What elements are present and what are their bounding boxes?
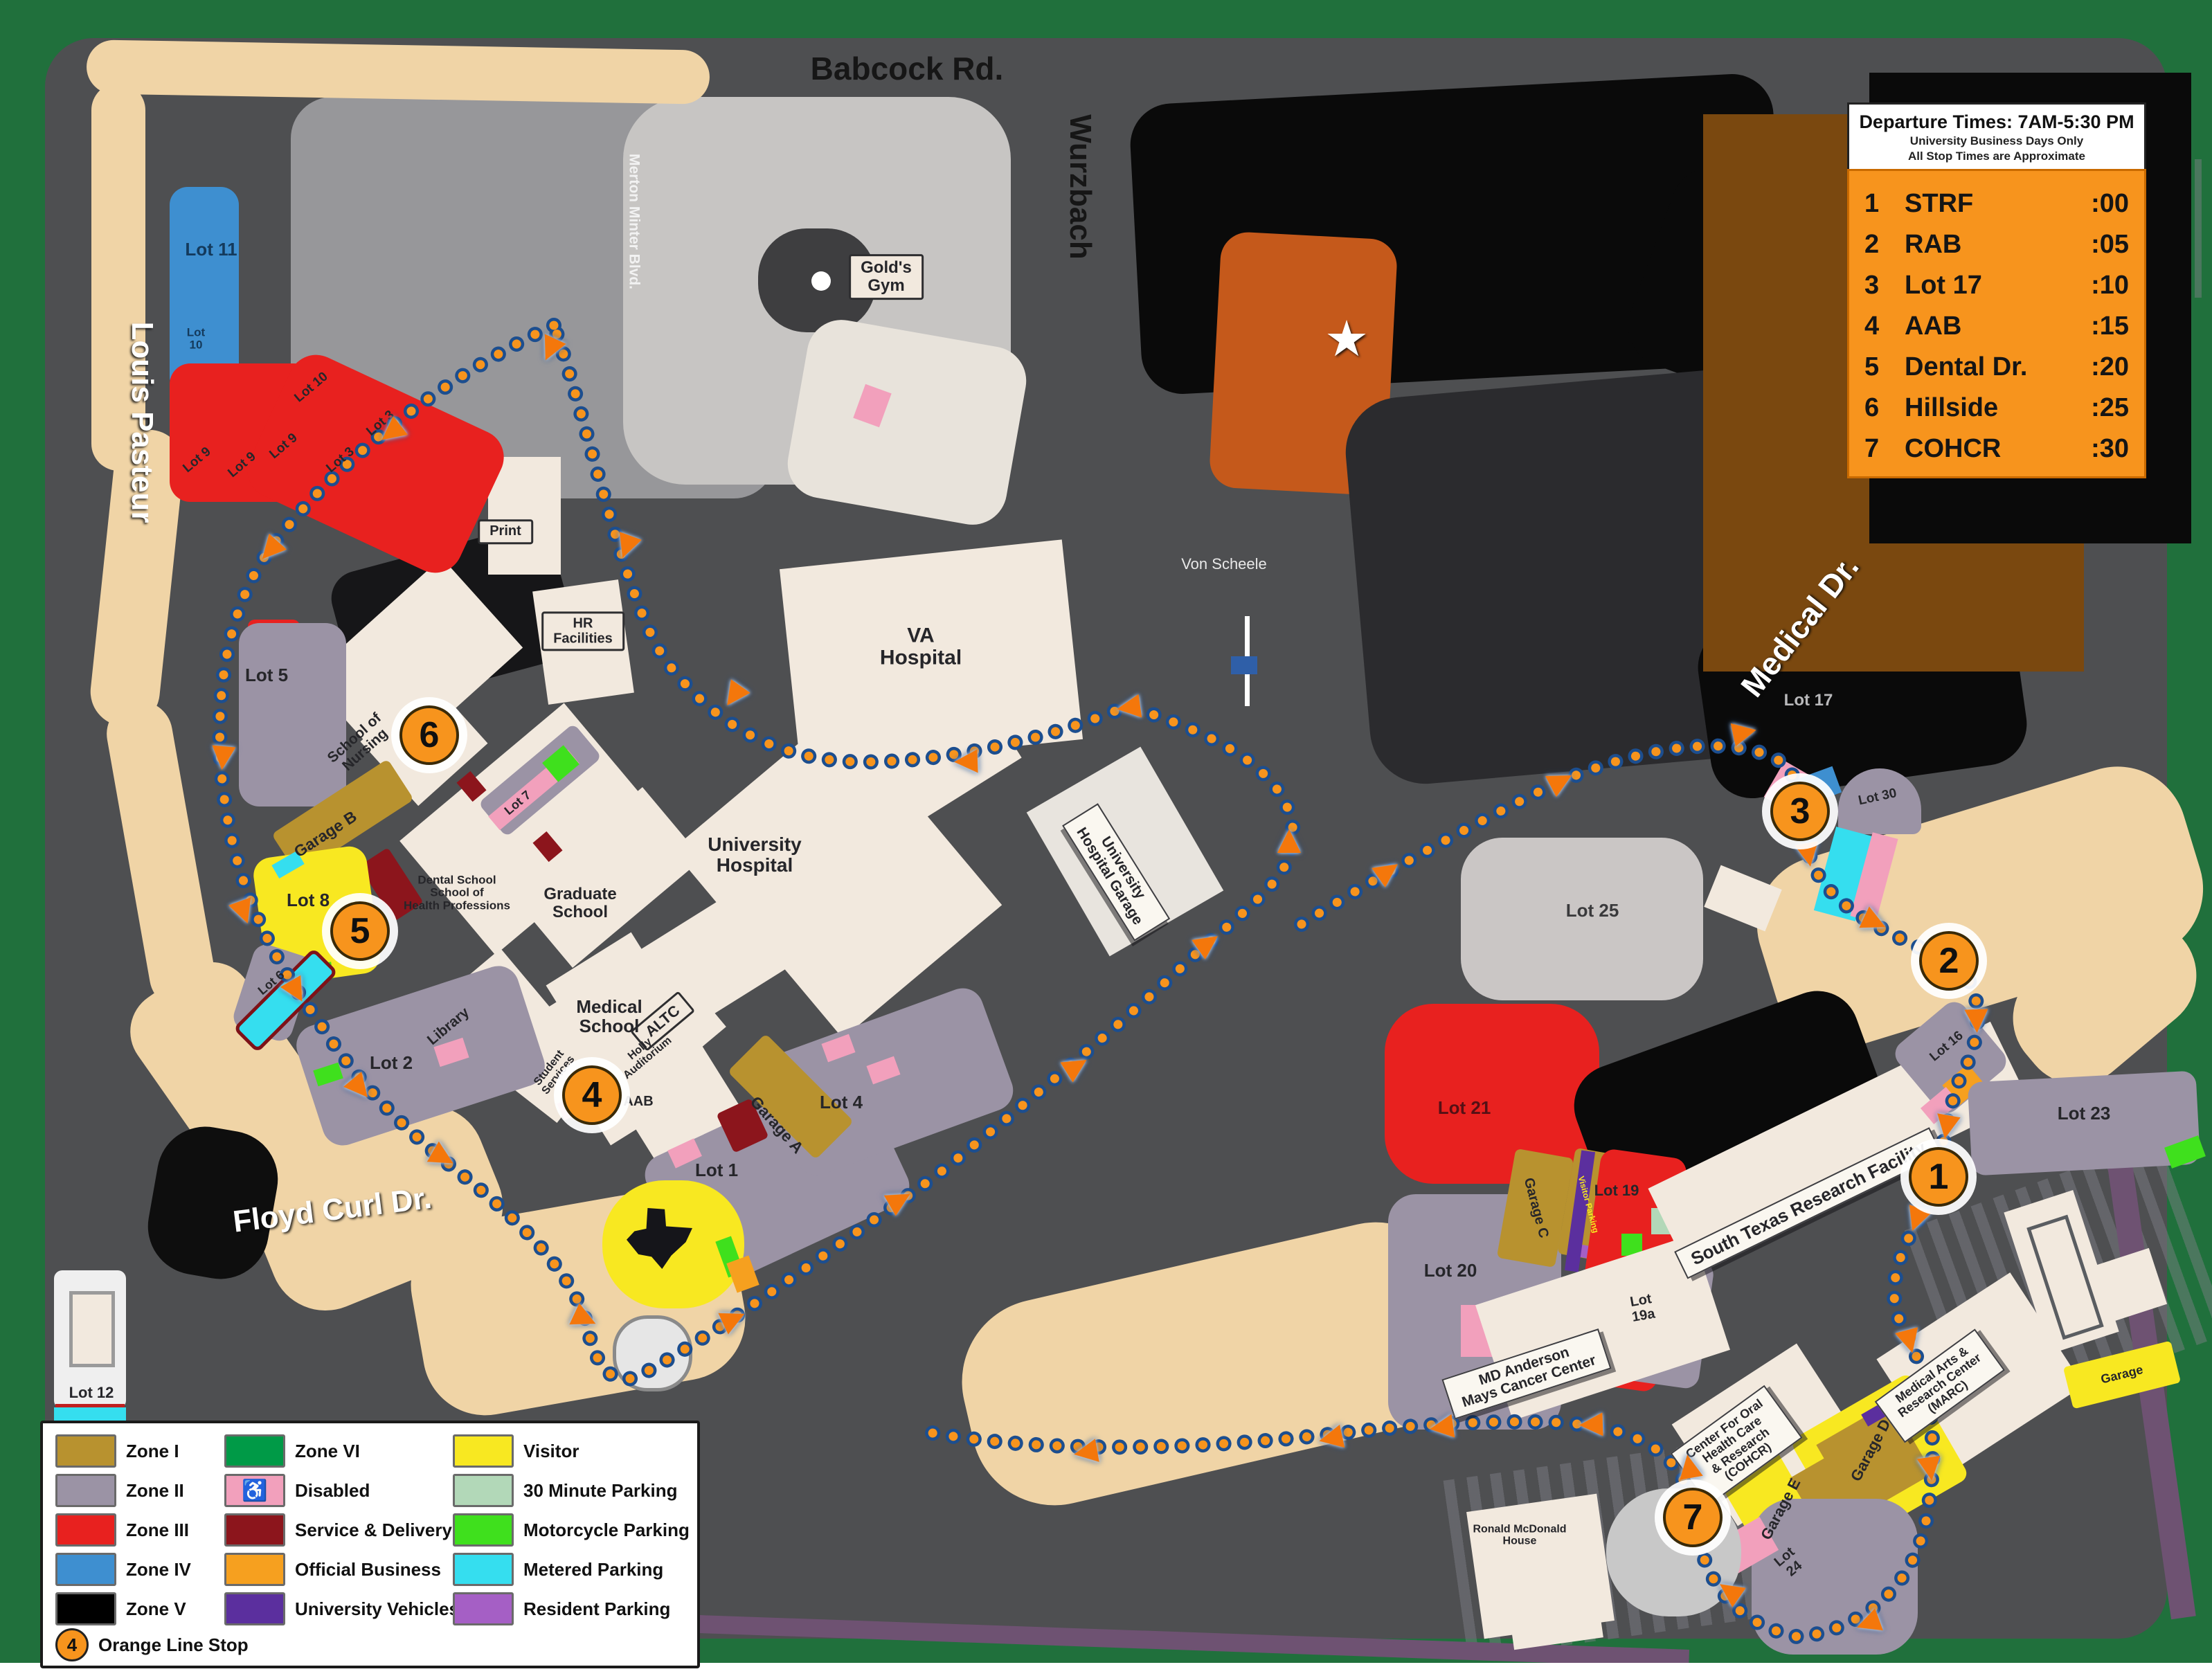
- legend-swatch-icon: [453, 1434, 514, 1468]
- legend-label: Resident Parking: [523, 1598, 670, 1620]
- legend-item-zone-i: Zone I: [55, 1434, 179, 1468]
- legend-item-disabled: ♿Disabled: [224, 1474, 370, 1507]
- orange-line-stop-4[interactable]: 4: [562, 1065, 622, 1125]
- legend-swatch-icon: [453, 1592, 514, 1625]
- route-arrow-icon: [1731, 719, 1759, 746]
- legend-item-zone-ii: Zone II: [55, 1474, 184, 1507]
- label-lot20: Lot 20: [1424, 1261, 1477, 1280]
- legend-swatch-icon: [55, 1434, 116, 1468]
- legend-label: Zone I: [126, 1441, 179, 1462]
- stop-number: 5: [1864, 352, 1905, 382]
- stop-time: :10: [2062, 271, 2129, 300]
- stop-number: 1: [1864, 189, 1905, 219]
- legend-swatch-icon: [453, 1513, 514, 1547]
- label-dental-school: Dental SchoolSchool ofHealth Professions: [404, 874, 510, 912]
- legend-label: University Vehicles: [295, 1598, 459, 1620]
- label-lot5: Lot 5: [245, 665, 288, 685]
- departure-board-subtitle-2: All Stop Times are Approximate: [1855, 150, 2139, 163]
- campus-map-canvas: Babcock Rd.WurzbachLouis PasteurMerton M…: [0, 0, 2212, 1676]
- label-lot10-blue: Lot10: [187, 327, 205, 352]
- route-arrow-icon: [1933, 1113, 1960, 1140]
- stop-time: :20: [2062, 352, 2129, 382]
- legend-label: Zone VI: [295, 1441, 360, 1462]
- legend-item-visitor: Visitor: [453, 1434, 579, 1468]
- label-lot2: Lot 2: [370, 1053, 413, 1072]
- label-lot19a: Lot19a: [1628, 1292, 1656, 1325]
- route-arrow-icon: [1917, 1456, 1943, 1482]
- departure-row-hillside: 6Hillside:25: [1855, 388, 2139, 429]
- legend-label: Service & Delivery: [295, 1520, 452, 1541]
- orange-line-stop-6[interactable]: 6: [399, 705, 459, 765]
- route-arrow-icon: [210, 746, 236, 771]
- label-lot1: Lot 1: [695, 1160, 738, 1180]
- stop-time: :25: [2062, 393, 2129, 423]
- legend-item-university-vehicles: University Vehicles: [224, 1592, 459, 1625]
- departure-board-rows: 1STRF:002RAB:053Lot 17:104AAB:155Dental …: [1847, 169, 2146, 478]
- legend-swatch-icon: [55, 1553, 116, 1586]
- route-arrow-icon: [1072, 1439, 1099, 1466]
- legend-label: 30 Minute Parking: [523, 1480, 678, 1502]
- route-arrow-icon: [1579, 1412, 1603, 1436]
- label-print: Print: [478, 519, 533, 544]
- orange-line-stop-label: Orange Line Stop: [98, 1634, 249, 1656]
- legend-swatch-icon: ♿: [224, 1474, 285, 1507]
- legend-label: Visitor: [523, 1441, 579, 1462]
- label-lot4: Lot 4: [820, 1092, 863, 1112]
- legend-label: Zone IV: [126, 1559, 191, 1580]
- stop-name: Dental Dr.: [1905, 352, 2062, 382]
- route-arrow-icon: [1428, 1414, 1455, 1441]
- legend-swatch-icon: [224, 1434, 285, 1468]
- legend-item-zone-iii: Zone III: [55, 1513, 189, 1547]
- stop-name: Lot 17: [1905, 271, 2062, 300]
- legend-orange-line-stop: 4 Orange Line Stop: [55, 1628, 249, 1661]
- departure-row-cohcr: 7COHCR:30: [1855, 429, 2139, 469]
- stop-name: Hillside: [1905, 393, 2062, 423]
- stop-name: RAB: [1905, 230, 2062, 260]
- label-lot21: Lot 21: [1438, 1098, 1491, 1117]
- parking-legend: Zone IZone IIZone IIIZone IVZone VZone V…: [40, 1421, 700, 1668]
- legend-swatch-icon: [453, 1553, 514, 1586]
- departure-board-title: Departure Times: 7AM-5:30 PM: [1855, 111, 2139, 133]
- departure-row-dental-dr-: 5Dental Dr.:20: [1855, 347, 2139, 388]
- legend-item-motorcycle-parking: Motorcycle Parking: [453, 1513, 690, 1547]
- label-lot17: Lot 17: [1784, 692, 1833, 710]
- route-arrow-icon: [1964, 1009, 1988, 1033]
- stop-number: 3: [1864, 271, 1905, 300]
- legend-item-30-minute-parking: 30 Minute Parking: [453, 1474, 678, 1507]
- stop-time: :00: [2062, 189, 2129, 219]
- legend-item-zone-vi: Zone VI: [224, 1434, 360, 1468]
- legend-label: Disabled: [295, 1480, 370, 1502]
- legend-label: Official Business: [295, 1559, 441, 1580]
- legend-swatch-icon: [224, 1592, 285, 1625]
- route-arrow-icon: [1115, 694, 1142, 721]
- orange-line-stop-1[interactable]: 1: [1909, 1147, 1968, 1207]
- legend-swatch-icon: [55, 1474, 116, 1507]
- stop-number: 6: [1864, 393, 1905, 423]
- label-lot12: Lot 12: [69, 1385, 114, 1401]
- street-von-scheele: Von Scheele: [1181, 556, 1267, 573]
- legend-label: Motorcycle Parking: [523, 1520, 690, 1541]
- label-lot25: Lot 25: [1566, 901, 1619, 920]
- legend-label: Zone V: [126, 1598, 186, 1620]
- label-medical-school: MedicalSchool: [576, 997, 642, 1036]
- street-louis-pasteur: Louis Pasteur: [125, 322, 159, 523]
- departure-row-rab: 2RAB:05: [1855, 224, 2139, 265]
- route-arrow-icon: [953, 749, 978, 773]
- label-aab: AAB: [623, 1094, 653, 1110]
- stop-number: 2: [1864, 230, 1905, 260]
- orange-line-stop-3[interactable]: 3: [1770, 782, 1830, 841]
- route-arrow-icon: [1277, 829, 1301, 853]
- stop-time: :30: [2062, 434, 2129, 464]
- stop-time: :15: [2062, 312, 2129, 341]
- label-university-hospital: UniversityHospital: [708, 834, 801, 876]
- label-graduate-school: GraduateSchool: [543, 885, 616, 921]
- legend-item-resident-parking: Resident Parking: [453, 1592, 670, 1625]
- label-lot8: Lot 8: [287, 890, 330, 910]
- legend-swatch-icon: [55, 1592, 116, 1625]
- legend-item-zone-v: Zone V: [55, 1592, 186, 1625]
- street-merton-minter: Merton Minter Blvd.: [626, 154, 642, 289]
- legend-swatch-icon: [55, 1513, 116, 1547]
- departure-row-lot-17: 3Lot 17:10: [1855, 265, 2139, 306]
- street-wurzbach: Wurzbach: [1063, 114, 1097, 259]
- label-rmh: Ronald McDonaldHouse: [1473, 1524, 1566, 1548]
- departure-row-strf: 1STRF:00: [1855, 183, 2139, 224]
- departure-board: Departure Times: 7AM-5:30 PM University …: [1847, 102, 2146, 518]
- label-lot11: Lot 11: [185, 240, 237, 259]
- label-va-hospital: VAHospital: [880, 625, 962, 670]
- legend-swatch-icon: [224, 1513, 285, 1547]
- campus-star-icon: ★: [1327, 315, 1366, 363]
- departure-board-subtitle-1: University Business Days Only: [1855, 134, 2139, 148]
- stop-name: AAB: [1905, 312, 2062, 341]
- legend-item-zone-iv: Zone IV: [55, 1553, 191, 1586]
- label-lot19: Lot 19: [1594, 1182, 1639, 1199]
- legend-swatch-icon: [453, 1474, 514, 1507]
- legend-label: Zone II: [126, 1480, 184, 1502]
- legend-item-service-delivery: Service & Delivery: [224, 1513, 452, 1547]
- route-arrow-icon: [1795, 841, 1822, 868]
- stop-number: 7: [1864, 434, 1905, 464]
- legend-item-official-business: Official Business: [224, 1553, 441, 1586]
- street-babcock: Babcock Rd.: [811, 52, 1004, 87]
- orange-line-stop-icon: 4: [55, 1628, 89, 1661]
- label-lot23: Lot 23: [2058, 1103, 2111, 1123]
- label-golds-gym: Gold'sGym: [849, 254, 924, 300]
- legend-swatch-icon: [224, 1553, 285, 1586]
- stop-time: :05: [2062, 230, 2129, 260]
- stop-name: STRF: [1905, 189, 2062, 219]
- legend-label: Zone III: [126, 1520, 189, 1541]
- legend-item-metered-parking: Metered Parking: [453, 1553, 663, 1586]
- label-hr-facilities: HRFacilities: [541, 611, 624, 651]
- departure-board-header: Departure Times: 7AM-5:30 PM University …: [1847, 102, 2146, 169]
- orange-line-stop-2[interactable]: 2: [1919, 931, 1979, 991]
- orange-line-stop-7[interactable]: 7: [1663, 1488, 1723, 1547]
- stop-name: COHCR: [1905, 434, 2062, 464]
- route-arrow-icon: [1317, 1425, 1345, 1452]
- orange-line-stop-5[interactable]: 5: [330, 901, 390, 961]
- legend-label: Metered Parking: [523, 1559, 663, 1580]
- route-arrow-icon: [1675, 1452, 1702, 1479]
- stop-number: 4: [1864, 312, 1905, 341]
- departure-row-aab: 4AAB:15: [1855, 306, 2139, 347]
